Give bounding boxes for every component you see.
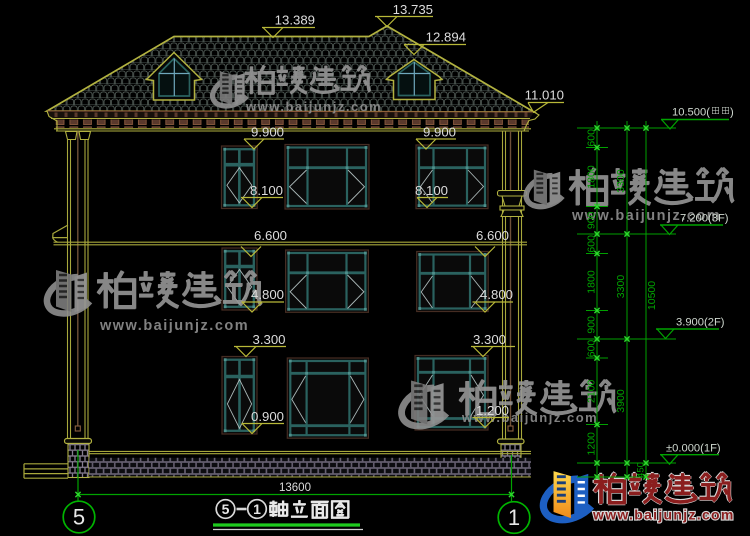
svg-text:900: 900 <box>586 316 598 334</box>
svg-text:8.100: 8.100 <box>250 183 283 198</box>
svg-text:4.800: 4.800 <box>251 287 284 302</box>
svg-text:13.389: 13.389 <box>275 13 315 28</box>
svg-text:2100: 2100 <box>586 379 598 403</box>
svg-text:0.900: 0.900 <box>251 409 284 424</box>
svg-text:1800: 1800 <box>586 165 598 189</box>
svg-text:10.500(: 10.500( <box>672 107 710 119</box>
svg-text:12.894: 12.894 <box>426 30 466 45</box>
svg-text:7.200(3F): 7.200(3F) <box>680 213 729 225</box>
svg-text:3300: 3300 <box>615 169 627 193</box>
svg-text:3900: 3900 <box>615 389 627 413</box>
svg-text:11.010: 11.010 <box>525 88 564 103</box>
svg-text:1: 1 <box>253 501 261 517</box>
svg-text:±0.000(1F): ±0.000(1F) <box>666 443 721 455</box>
svg-text:600: 600 <box>586 235 598 253</box>
svg-text:): ) <box>730 107 734 119</box>
svg-text:900: 900 <box>586 211 598 229</box>
svg-text:3.300: 3.300 <box>252 332 285 347</box>
svg-text:1.200: 1.200 <box>476 403 509 418</box>
svg-text:5: 5 <box>73 505 85 530</box>
svg-text:3.300: 3.300 <box>473 332 506 347</box>
svg-text:450: 450 <box>636 462 647 478</box>
svg-text:1200: 1200 <box>586 432 598 456</box>
svg-text:9.900: 9.900 <box>251 125 284 140</box>
svg-text:6.600: 6.600 <box>254 228 287 243</box>
svg-text:6.600: 6.600 <box>476 228 509 243</box>
svg-text:www.baijunjz.com: www.baijunjz.com <box>592 507 735 523</box>
svg-text:3300: 3300 <box>615 275 627 299</box>
svg-text:www.baijunjz.com: www.baijunjz.com <box>245 99 382 114</box>
svg-text:4.800: 4.800 <box>480 287 513 302</box>
svg-text:8.100: 8.100 <box>415 183 448 198</box>
svg-text:600: 600 <box>586 340 598 358</box>
svg-text:13600: 13600 <box>279 482 311 494</box>
svg-text:1: 1 <box>508 505 520 530</box>
svg-text:600: 600 <box>586 129 598 147</box>
svg-text:9.900: 9.900 <box>423 125 456 140</box>
svg-text:10500: 10500 <box>646 281 658 310</box>
svg-text:www.baijunjz.com: www.baijunjz.com <box>99 318 249 334</box>
svg-text:3.900(2F): 3.900(2F) <box>676 317 725 329</box>
svg-text:1800: 1800 <box>586 270 598 294</box>
svg-text:13.735: 13.735 <box>393 2 433 17</box>
svg-text:5: 5 <box>222 501 230 517</box>
